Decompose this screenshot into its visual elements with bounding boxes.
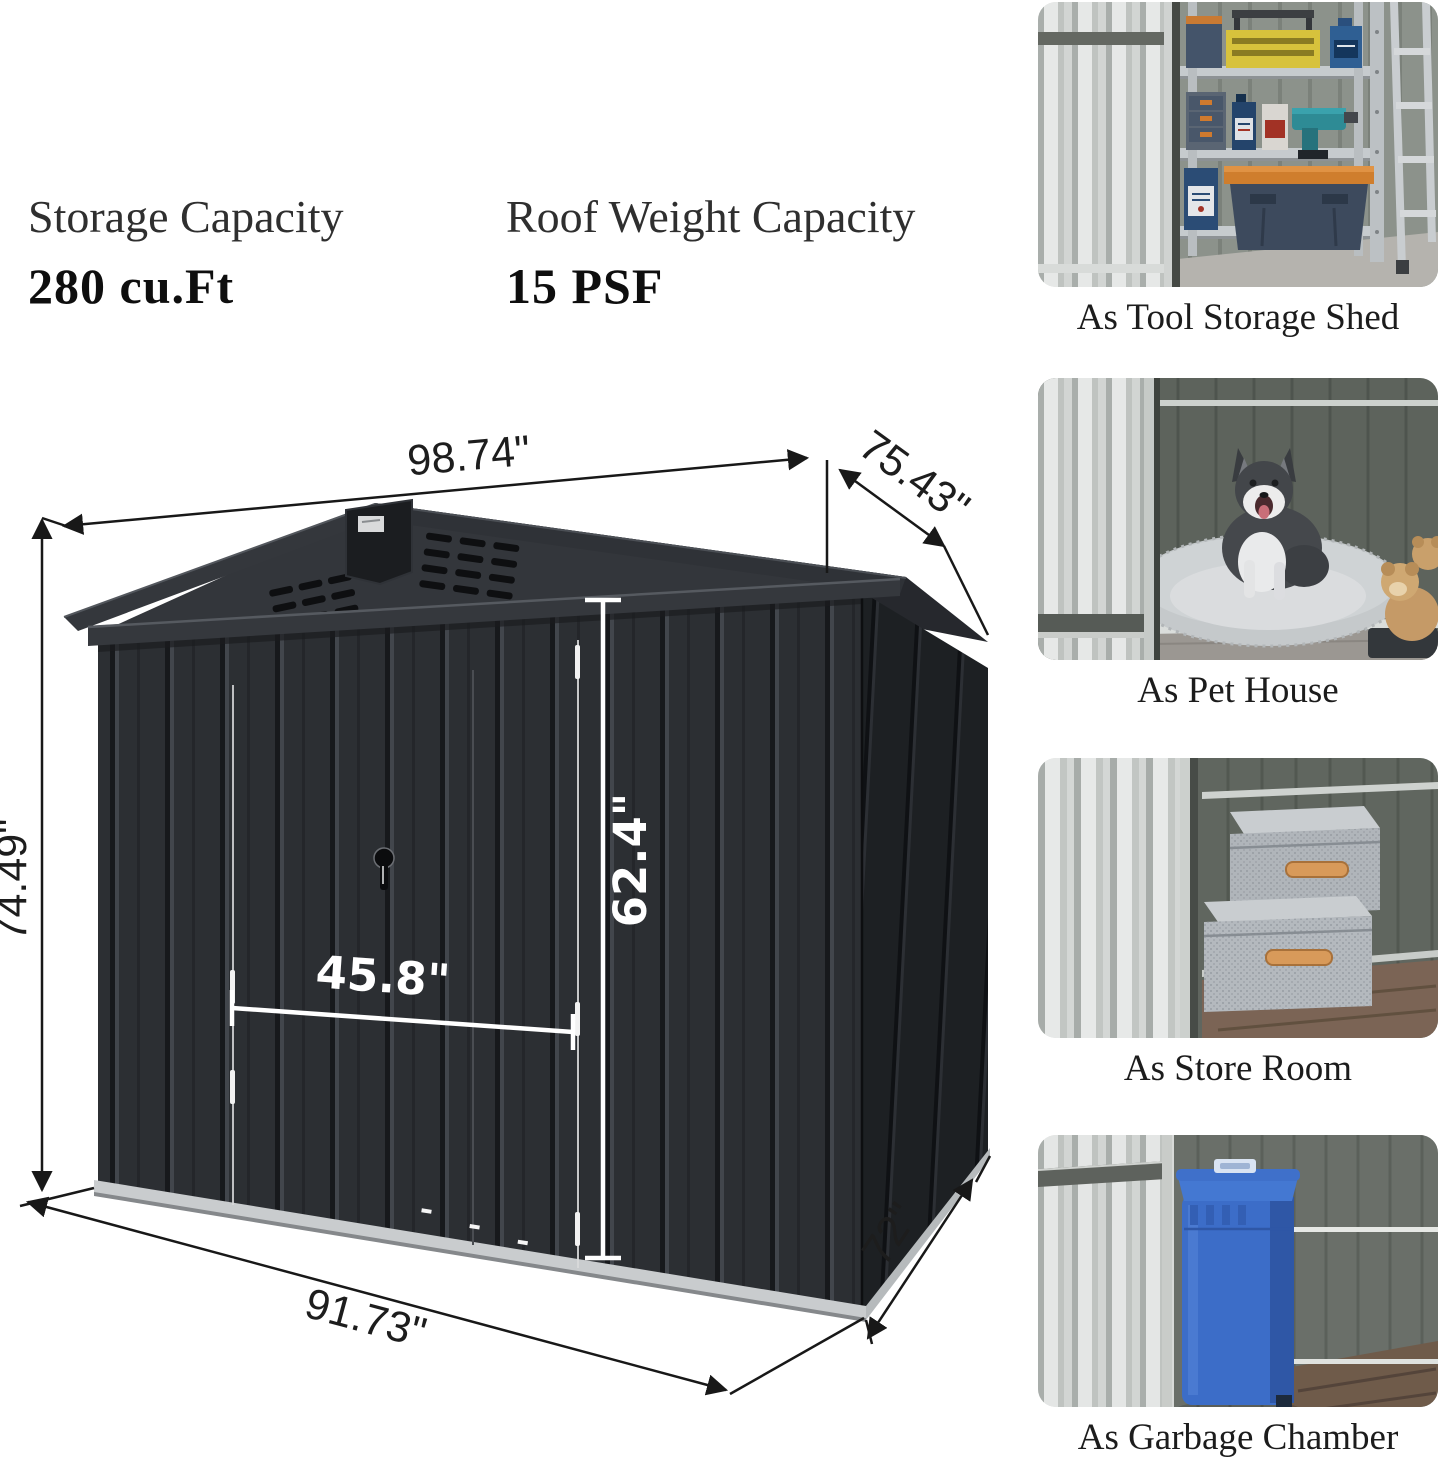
wall-rail xyxy=(1150,400,1438,406)
usecase-caption: As Garbage Chamber xyxy=(1038,1416,1438,1459)
door-height-label: 62.4" xyxy=(604,793,657,927)
drawer-unit xyxy=(1186,92,1226,150)
roof-depth-label: 75.43" xyxy=(850,421,978,532)
open-door-panel xyxy=(1038,758,1198,1038)
shed-diagram: 45.8" 62.4" 98.74" 75.43" 74.49" 91.73" … xyxy=(0,430,1010,1430)
usecase-card-store-room: As Store Room xyxy=(1038,758,1438,1090)
usecase-card-tool-storage: As Tool Storage Shed xyxy=(1038,2,1438,339)
spec-storage-capacity: Storage Capacity 280 cu.Ft xyxy=(28,192,344,315)
storage-bin-small xyxy=(1186,16,1222,68)
usecase-caption: As Tool Storage Shed xyxy=(1038,296,1438,339)
tool-storage-photo xyxy=(1038,2,1438,287)
pet-house-photo xyxy=(1038,378,1438,660)
wall-rail-low xyxy=(1292,1359,1438,1364)
spec-roof-weight-capacity: Roof Weight Capacity 15 PSF xyxy=(506,192,915,315)
sliding-door-panel xyxy=(1038,2,1180,287)
ornament-label xyxy=(358,516,384,532)
spec-value: 280 cu.Ft xyxy=(28,257,344,315)
usecase-card-pet-house: As Pet House xyxy=(1038,378,1438,712)
open-door-panel xyxy=(1038,378,1160,660)
wheelie-bin xyxy=(1176,1159,1300,1407)
base-width-label: 91.73" xyxy=(300,1279,431,1357)
detergent-jug xyxy=(1184,168,1218,230)
wall-height-label: 74.49" xyxy=(0,819,36,942)
usecase-caption: As Store Room xyxy=(1038,1047,1438,1090)
roof-width-label: 98.74" xyxy=(405,427,532,486)
usecase-card-garbage-chamber: As Garbage Chamber xyxy=(1038,1135,1438,1459)
usecase-caption: As Pet House xyxy=(1038,669,1438,712)
big-tote xyxy=(1224,166,1374,250)
spec-value: 15 PSF xyxy=(506,257,915,315)
product-infographic: Storage Capacity 280 cu.Ft Roof Weight C… xyxy=(0,0,1445,1469)
wall-rail-mid xyxy=(1292,1227,1438,1232)
storage-box-lower xyxy=(1204,896,1372,1012)
door-width-label: 45.8" xyxy=(314,945,452,1007)
garbage-chamber-photo xyxy=(1038,1135,1438,1407)
spec-label: Storage Capacity xyxy=(28,192,344,243)
store-room-photo xyxy=(1038,758,1438,1038)
gable-ornament xyxy=(346,500,412,584)
open-door-panel xyxy=(1038,1135,1172,1407)
spec-label: Roof Weight Capacity xyxy=(506,192,915,243)
